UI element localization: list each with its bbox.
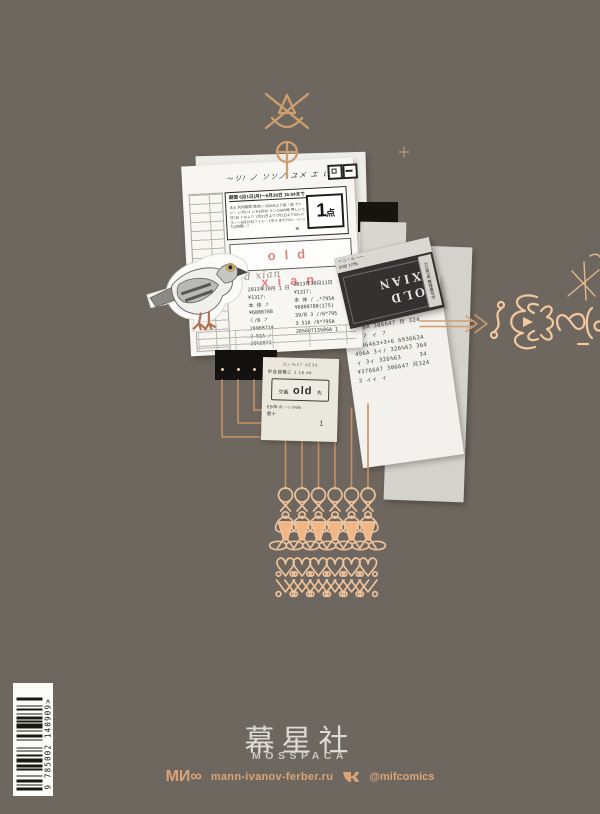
publisher-row: МИ∞ mann-ivanov-ferber.ru @mifcomics xyxy=(0,768,600,786)
vk-icon xyxy=(342,771,360,783)
lace-ornament xyxy=(270,488,386,596)
old-stamp-box: 交番 old 先 xyxy=(271,378,330,402)
double-line-arrow xyxy=(420,315,487,333)
book-back-cover: ィ ㇇ ィ ィ¥6264 296%63 月 57A+3 ィ ィ 324¥636A… xyxy=(0,0,600,814)
top-glyph-x xyxy=(266,94,308,128)
plus-mark xyxy=(399,147,409,157)
pigeon-illustration xyxy=(146,240,252,336)
barcode-number: 9 785002 140909> xyxy=(44,698,53,789)
receipt-beige: G)-%27 4E36 甲各疑難に 1 16 ## 交番 old 先 E5/年 … xyxy=(261,357,339,442)
barcode: 9 785002 140909> xyxy=(13,683,53,796)
social-handle: @mifcomics xyxy=(369,771,434,783)
corner-scribble xyxy=(568,254,600,300)
mif-logo: МИ∞ xyxy=(166,768,202,786)
brand-latin: MOSSPACA xyxy=(0,750,600,762)
barcode-bars xyxy=(17,696,43,790)
top-glyph-balloon-cross xyxy=(277,142,297,178)
publisher-url: mann-ivanov-ferber.ru xyxy=(211,771,333,783)
glyph-cluster xyxy=(491,295,600,348)
